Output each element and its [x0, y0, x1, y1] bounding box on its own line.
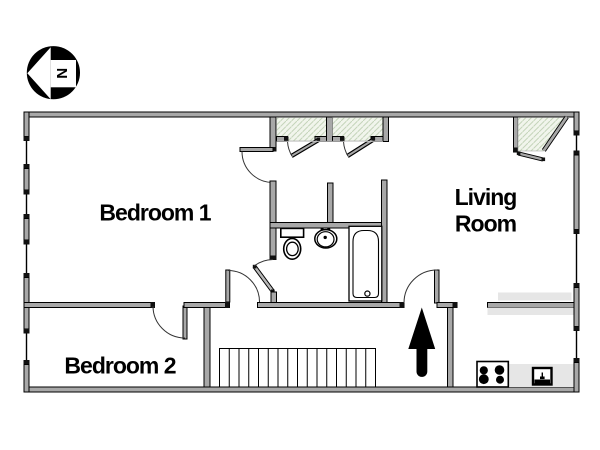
svg-text:Bedroom 1: Bedroom 1	[99, 200, 211, 226]
svg-text:Living: Living	[455, 184, 517, 210]
svg-text:Bedroom 2: Bedroom 2	[64, 353, 175, 379]
svg-text:N: N	[53, 68, 70, 79]
svg-text:Room: Room	[455, 211, 517, 237]
